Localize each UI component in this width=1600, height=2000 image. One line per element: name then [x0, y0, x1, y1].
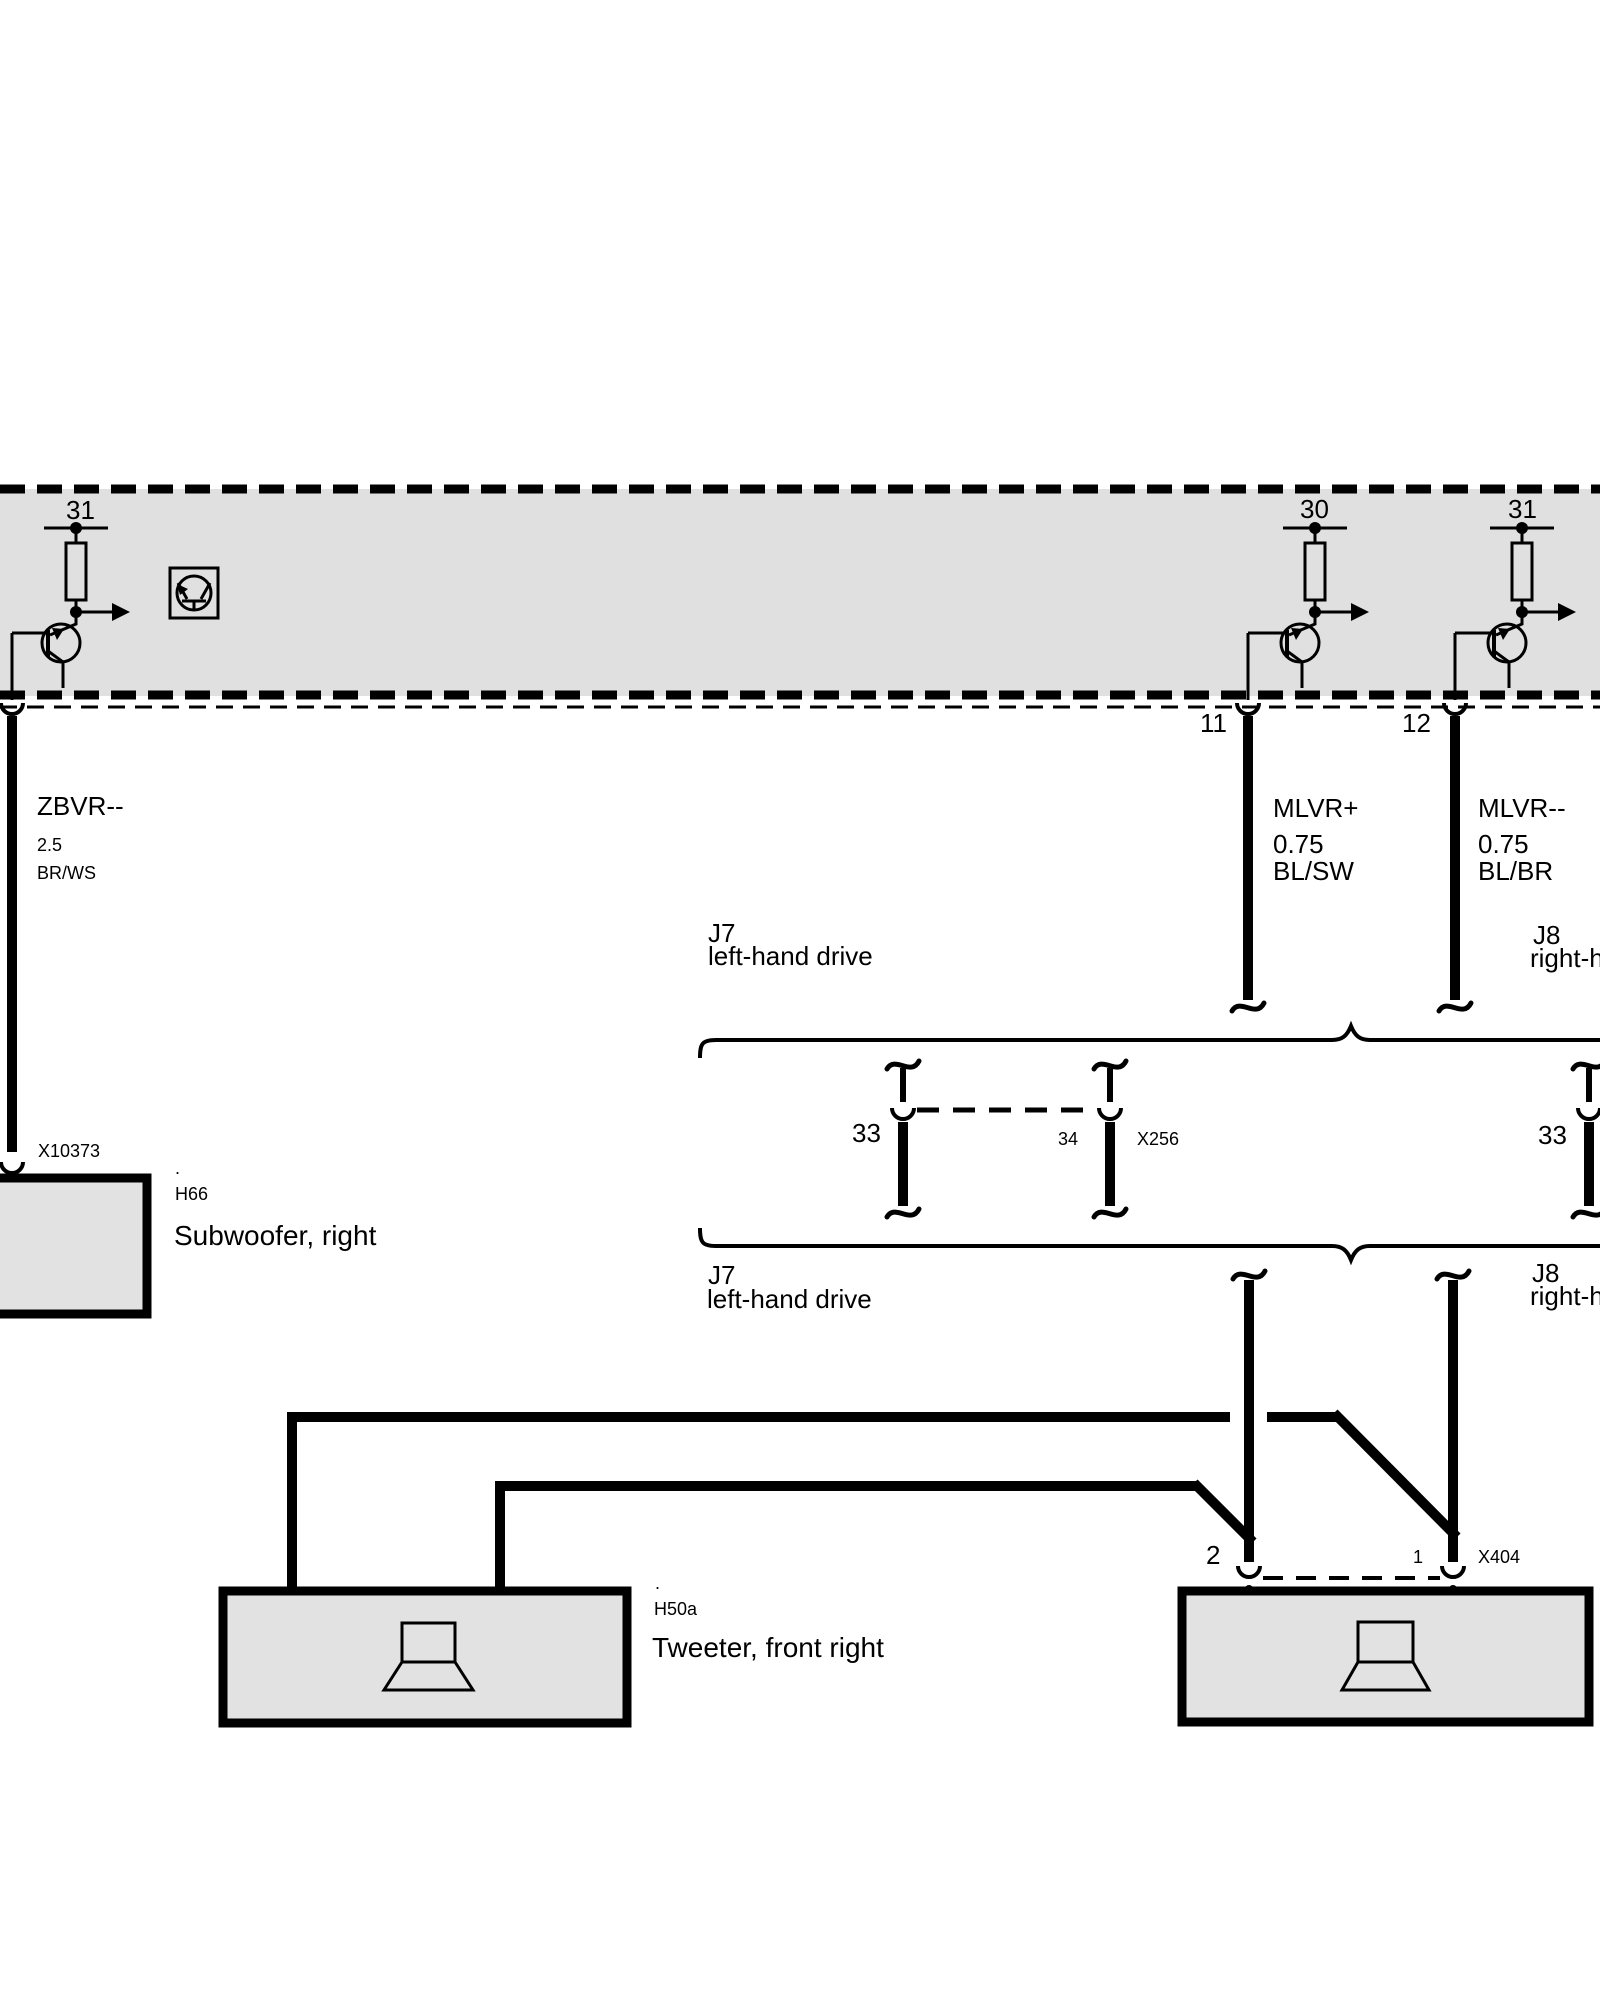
x256-name-label: X256 [1137, 1130, 1179, 1148]
variant-j8-top-name: right-h [1530, 945, 1600, 971]
subwoofer-box [0, 1178, 147, 1314]
wire-break-icon [1233, 1271, 1265, 1279]
pin-12-label: 12 [1402, 710, 1431, 736]
wire-break-icon [1232, 1003, 1264, 1011]
wire-mlvr-minus-gauge: 0.75 [1478, 831, 1529, 857]
x10373-name-label: X10373 [38, 1142, 100, 1160]
wire-mlvr-minus-color: BL/BR [1478, 858, 1553, 884]
x404-pin-1-label: 1 [1413, 1548, 1423, 1566]
variant-j7-bottom-name: left-hand drive [707, 1286, 872, 1312]
diagram-linework [0, 0, 1600, 2000]
wire-break-icon [887, 1061, 919, 1069]
terminal-dot [496, 1587, 504, 1595]
wire-break-icon [1573, 1209, 1600, 1217]
subwoofer-name: Subwoofer, right [174, 1222, 376, 1250]
variant-brace-top [700, 1026, 1600, 1058]
terminal-31-left-label: 31 [66, 497, 95, 523]
variant-j7-top-name: left-hand drive [708, 943, 873, 969]
socket-x10373 [1, 1162, 23, 1173]
terminal-30-label: 30 [1300, 496, 1329, 522]
wire-mlvr-minus-name: MLVR-- [1478, 795, 1566, 821]
x404-pin-2-label: 2 [1206, 1542, 1220, 1568]
wiring-diagram: 31 30 31 11 12 ZBVR-- 2.5 BR/WS MLVR+ 0.… [0, 0, 1600, 2000]
terminal-31-right-label: 31 [1508, 496, 1537, 522]
tweeter-wire-right [500, 1486, 1197, 1592]
wire-zbvr-gauge: 2.5 [37, 836, 62, 854]
tweeter-name: Tweeter, front right [652, 1634, 884, 1662]
pin-dot [1245, 1585, 1253, 1593]
wire-break-icon [1437, 1271, 1469, 1279]
wire-zbvr-name: ZBVR-- [37, 793, 124, 819]
subwoofer-marker: . [175, 1159, 180, 1177]
amplifier-module-band [0, 489, 1600, 707]
pin-dot [1449, 1585, 1457, 1593]
socket-x256-34 [1099, 1108, 1121, 1119]
wire-break-icon [1094, 1061, 1126, 1069]
pin-11-label: 11 [1200, 710, 1227, 736]
pin-socket-12 [1444, 703, 1466, 714]
tweeter-wire-left [292, 1417, 1230, 1592]
right-speaker-box [1182, 1591, 1589, 1722]
variant-j8-bottom-name: right-h [1530, 1283, 1600, 1309]
wire-mlvr-plus-name: MLVR+ [1273, 795, 1359, 821]
wire-zbvr-color: BR/WS [37, 864, 96, 882]
wire-break-icon [1439, 1003, 1471, 1011]
tweeter-wire-left-diagonal [1334, 1413, 1457, 1537]
socket-x256-33 [892, 1108, 914, 1119]
tweeter-code: H50a [654, 1600, 697, 1618]
variant-brace-bottom [700, 1228, 1600, 1260]
socket-x256-33-rhd [1578, 1108, 1600, 1119]
tweeter-wiring [288, 1413, 1457, 1595]
wire-break-icon [887, 1209, 919, 1217]
terminal-dot [288, 1587, 296, 1595]
x256-pin-33-rhd-label: 33 [1538, 1122, 1567, 1148]
subwoofer-code: H66 [175, 1185, 208, 1203]
module-fill [0, 489, 1600, 696]
x256-pin-34-label: 34 [1058, 1130, 1078, 1148]
socket-x404-1 [1442, 1566, 1464, 1577]
x404-name-label: X404 [1478, 1548, 1520, 1566]
wire-mlvr-plus-gauge: 0.75 [1273, 831, 1324, 857]
wire-mlvr-plus-color: BL/SW [1273, 858, 1354, 884]
connector-x256 [887, 1061, 1600, 1217]
wire-break-icon [1094, 1209, 1126, 1217]
wire-break-icon [1573, 1061, 1600, 1069]
x256-pin-33-label: 33 [852, 1120, 881, 1146]
tweeter-box [223, 1591, 627, 1723]
socket-x404-2 [1238, 1566, 1260, 1577]
tweeter-marker: . [655, 1574, 660, 1592]
